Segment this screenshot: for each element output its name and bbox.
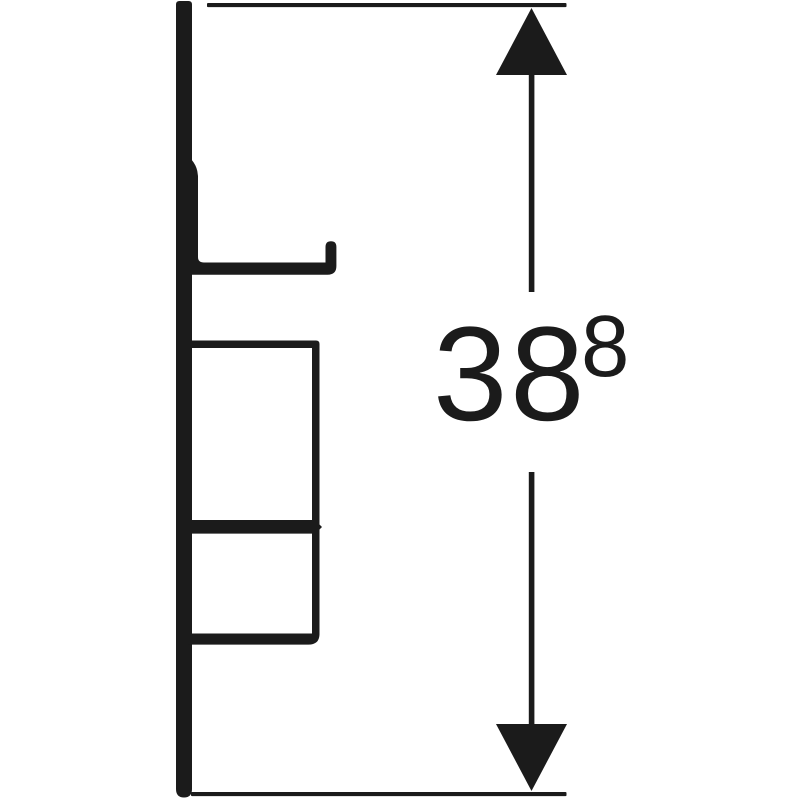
svg-text:8: 8 (581, 298, 629, 395)
svg-text:38: 38 (433, 300, 587, 449)
